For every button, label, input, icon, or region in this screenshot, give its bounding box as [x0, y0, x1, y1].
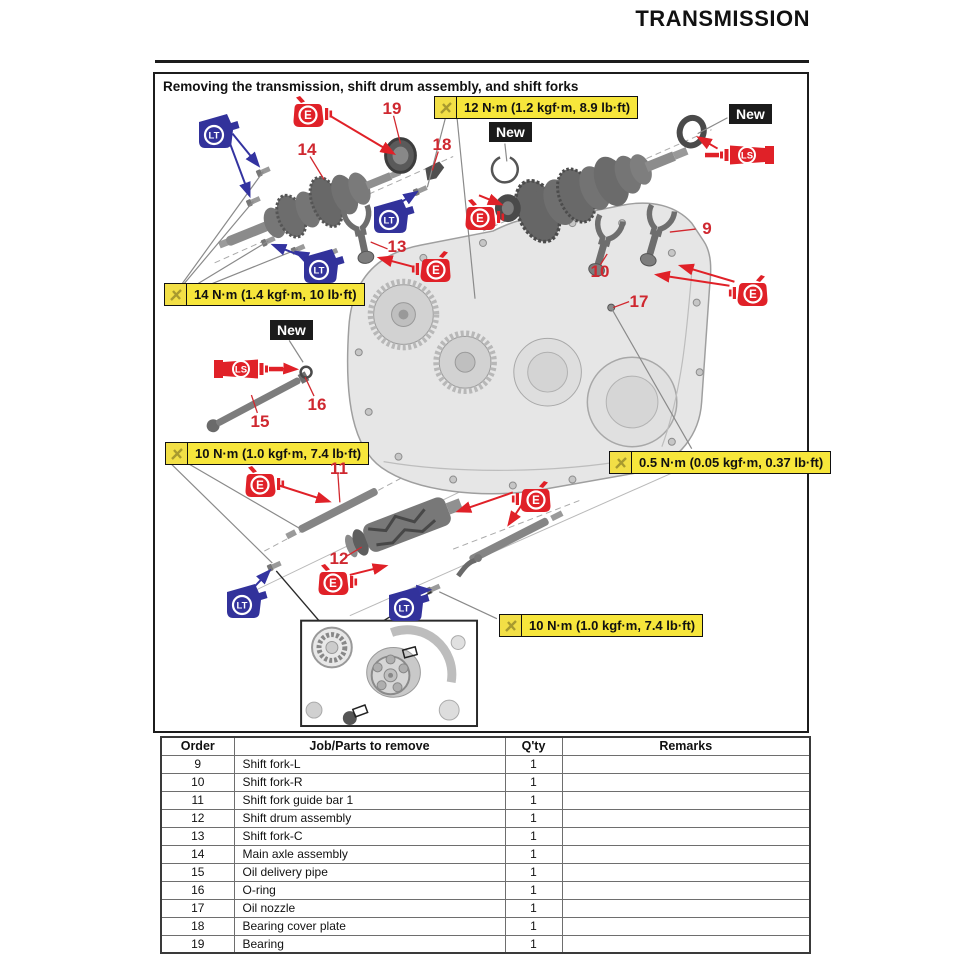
order-cell: 18 [161, 917, 234, 935]
torque-text: 14 N·m (1.4 kgf·m, 10 lb·ft) [187, 284, 364, 305]
job-cell: Bearing cover plate [234, 917, 505, 935]
part-number-18: 18 [433, 135, 452, 155]
qty-cell: 1 [505, 917, 562, 935]
circlip-illustration [492, 157, 518, 183]
remarks-cell [562, 827, 810, 845]
guide-bar-illustration-b [468, 510, 564, 564]
threadlocker-icon: LT [297, 243, 347, 285]
grease-letter: LS [741, 150, 753, 161]
parts-table: Order Job/Parts to remove Q'ty Remarks 9… [160, 736, 811, 954]
engine-oil-letter: E [256, 480, 264, 492]
qty-cell: 1 [505, 809, 562, 827]
remarks-cell [562, 863, 810, 881]
torque-callout-10nm-stopper: 10 N·m (1.0 kgf·m, 7.4 lb·ft) [499, 614, 703, 637]
wrench-icon [435, 97, 457, 118]
new-part-label: New [489, 122, 532, 142]
job-cell: Shift fork-C [234, 827, 505, 845]
torque-text: 10 N·m (1.0 kgf·m, 7.4 lb·ft) [522, 615, 702, 636]
engine-oil-icon: E [409, 251, 455, 287]
engine-oil-icon: E [509, 481, 555, 517]
threadlocker-letter: LT [314, 265, 325, 276]
wrench-icon [165, 284, 187, 305]
table-row: 18 Bearing cover plate 1 [161, 917, 810, 935]
torque-text: 0.5 N·m (0.05 kgf·m, 0.37 lb·ft) [632, 452, 830, 473]
remarks-cell [562, 899, 810, 917]
threadlocker-letter: LT [237, 600, 248, 611]
qty-cell: 1 [505, 935, 562, 953]
remarks-cell [562, 791, 810, 809]
engine-oil-letter: E [532, 495, 540, 507]
order-cell: 16 [161, 881, 234, 899]
part-number-9: 9 [702, 219, 711, 239]
order-cell: 12 [161, 809, 234, 827]
qty-cell: 1 [505, 773, 562, 791]
table-row: 17 Oil nozzle 1 [161, 899, 810, 917]
header-qty: Q'ty [505, 737, 562, 755]
engine-oil-letter: E [749, 289, 757, 301]
qty-cell: 1 [505, 881, 562, 899]
part-number-10: 10 [591, 262, 610, 282]
threadlocker-letter: LT [209, 130, 220, 141]
new-part-label: New [270, 320, 313, 340]
threadlocker-icon: LT [220, 578, 270, 620]
qty-cell: 1 [505, 845, 562, 863]
header-order: Order [161, 737, 234, 755]
qty-cell: 1 [505, 791, 562, 809]
new-part-label: New [729, 104, 772, 124]
job-cell: Shift drum assembly [234, 809, 505, 827]
threadlocker-icon: LT [367, 193, 417, 235]
part-number-14: 14 [298, 140, 317, 160]
order-cell: 9 [161, 755, 234, 773]
part-number-17: 17 [630, 292, 649, 312]
header-job: Job/Parts to remove [234, 737, 505, 755]
qty-cell: 1 [505, 755, 562, 773]
engine-oil-letter: E [432, 265, 440, 277]
page-title: TRANSMISSION [635, 6, 810, 32]
engine-oil-letter: E [476, 213, 484, 225]
remarks-cell [562, 881, 810, 899]
table-row: 11 Shift fork guide bar 1 1 [161, 791, 810, 809]
part-number-19: 19 [383, 99, 402, 119]
table-header-row: Order Job/Parts to remove Q'ty Remarks [161, 737, 810, 755]
order-cell: 10 [161, 773, 234, 791]
table-row: 9 Shift fork-L 1 [161, 755, 810, 773]
threadlocker-letter: LT [399, 603, 410, 614]
remarks-cell [562, 845, 810, 863]
order-cell: 14 [161, 845, 234, 863]
job-cell: Oil nozzle [234, 899, 505, 917]
engine-oil-icon: E [289, 96, 335, 132]
job-cell: O-ring [234, 881, 505, 899]
inset-detail-box [276, 571, 477, 726]
table-row: 19 Bearing 1 [161, 935, 810, 953]
job-cell: Shift fork-R [234, 773, 505, 791]
order-cell: 17 [161, 899, 234, 917]
engine-oil-icon: E [726, 275, 772, 311]
job-cell: Oil delivery pipe [234, 863, 505, 881]
grease-letter: LS [235, 364, 247, 375]
remarks-cell [562, 755, 810, 773]
remarks-cell [562, 917, 810, 935]
wrench-icon [500, 615, 522, 636]
table-row: 14 Main axle assembly 1 [161, 845, 810, 863]
table-row: 12 Shift drum assembly 1 [161, 809, 810, 827]
transmission-exploded-illustration [155, 74, 807, 731]
engine-oil-letter: E [304, 110, 312, 122]
engine-oil-icon: E [461, 199, 507, 235]
header-divider [155, 60, 809, 63]
job-cell: Bearing [234, 935, 505, 953]
remarks-cell [562, 809, 810, 827]
order-cell: 11 [161, 791, 234, 809]
job-cell: Shift fork guide bar 1 [234, 791, 505, 809]
grease-icon: LS [703, 141, 775, 169]
grease-icon: LS [213, 355, 285, 383]
order-cell: 13 [161, 827, 234, 845]
torque-callout-12nm: 12 N·m (1.2 kgf·m, 8.9 lb·ft) [434, 96, 638, 119]
part-number-11: 11 [330, 459, 348, 479]
threadlocker-icon: LT [382, 581, 432, 623]
table-row: 10 Shift fork-R 1 [161, 773, 810, 791]
engine-oil-letter: E [329, 578, 337, 590]
order-cell: 19 [161, 935, 234, 953]
job-cell: Shift fork-L [234, 755, 505, 773]
engine-oil-icon: E [241, 466, 287, 502]
figure-title: Removing the transmission, shift drum as… [163, 79, 578, 94]
exploded-view-figure: Removing the transmission, shift drum as… [153, 72, 809, 733]
table-row: 13 Shift fork-C 1 [161, 827, 810, 845]
wrench-icon [166, 443, 188, 464]
part-number-15: 15 [251, 412, 270, 432]
table-row: 16 O-ring 1 [161, 881, 810, 899]
qty-cell: 1 [505, 863, 562, 881]
torque-text: 12 N·m (1.2 kgf·m, 8.9 lb·ft) [457, 97, 637, 118]
part-number-13: 13 [388, 237, 407, 257]
remarks-cell [562, 935, 810, 953]
torque-callout-14nm: 14 N·m (1.4 kgf·m, 10 lb·ft) [164, 283, 365, 306]
qty-cell: 1 [505, 827, 562, 845]
threadlocker-icon: LT [192, 108, 242, 150]
wrench-icon [610, 452, 632, 473]
qty-cell: 1 [505, 899, 562, 917]
job-cell: Main axle assembly [234, 845, 505, 863]
engine-oil-icon: E [314, 564, 360, 600]
table-row: 15 Oil delivery pipe 1 [161, 863, 810, 881]
order-cell: 15 [161, 863, 234, 881]
header-remarks: Remarks [562, 737, 810, 755]
torque-callout-0-5nm: 0.5 N·m (0.05 kgf·m, 0.37 lb·ft) [609, 451, 831, 474]
threadlocker-letter: LT [384, 215, 395, 226]
remarks-cell [562, 773, 810, 791]
part-number-16: 16 [308, 395, 327, 415]
